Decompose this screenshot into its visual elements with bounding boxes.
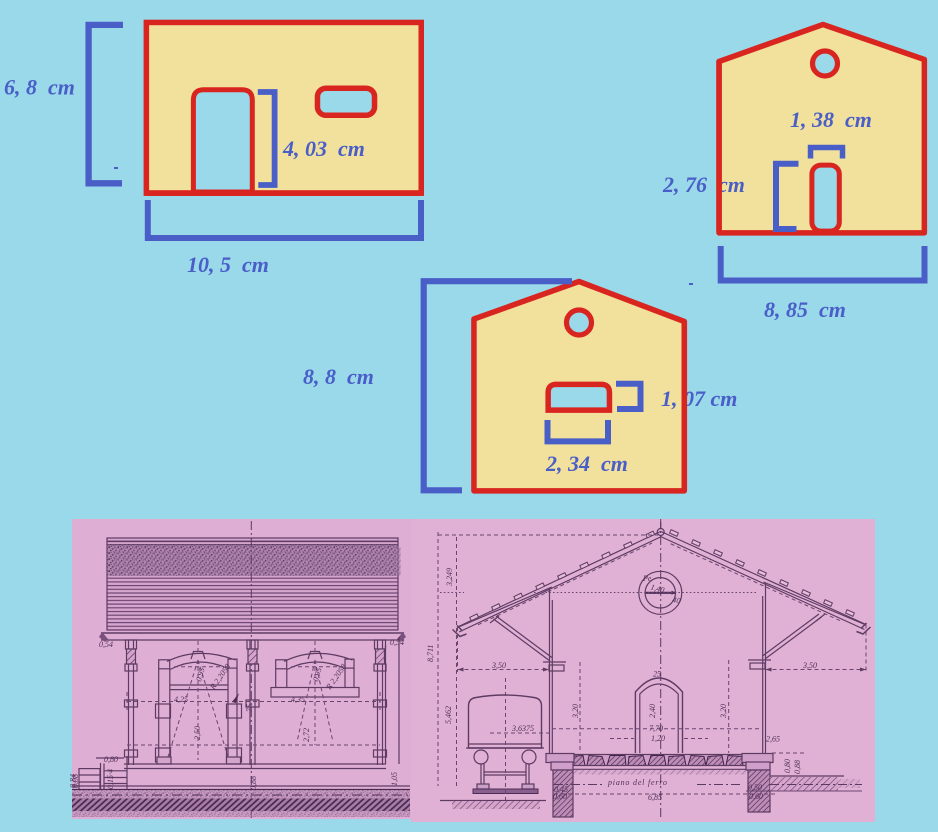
svg-text:3,50: 3,50 bbox=[802, 661, 817, 670]
svg-text:1, 07 cm: 1, 07 cm bbox=[661, 386, 737, 411]
svg-text:1,05: 1,05 bbox=[390, 772, 399, 786]
svg-text:1, 38 cm: 1, 38 cm bbox=[790, 107, 872, 132]
svg-text:2,65: 2,65 bbox=[766, 735, 780, 744]
svg-text:3,20: 3,20 bbox=[719, 704, 728, 719]
svg-text:0,88: 0,88 bbox=[249, 776, 258, 790]
svg-text:3,249: 3,249 bbox=[445, 568, 454, 587]
svg-text:4,25: 4,25 bbox=[174, 695, 188, 704]
svg-text:3,6375: 3,6375 bbox=[511, 724, 534, 733]
svg-text:0,60: 0,60 bbox=[749, 792, 763, 801]
svg-text:4,35: 4,35 bbox=[291, 695, 305, 704]
svg-text:2,40: 2,40 bbox=[648, 704, 657, 718]
svg-text:10, 5 cm: 10, 5 cm bbox=[187, 252, 269, 277]
svg-text:0,08: 0,08 bbox=[71, 774, 80, 788]
svg-text:0,54: 0,54 bbox=[390, 638, 404, 647]
svg-text:8, 85 cm: 8, 85 cm bbox=[764, 297, 846, 322]
svg-text:0,60: 0,60 bbox=[553, 792, 567, 801]
svg-text:1,20: 1,20 bbox=[651, 734, 665, 743]
svg-text:40: 40 bbox=[672, 595, 681, 605]
svg-text:piano del ferro: piano del ferro bbox=[607, 778, 668, 787]
svg-text:4, 03 cm: 4, 03 cm bbox=[282, 136, 365, 161]
svg-text:0,54: 0,54 bbox=[99, 640, 113, 649]
svg-text:Pe: Pe bbox=[642, 574, 652, 583]
svg-text:0,50: 0,50 bbox=[748, 783, 762, 792]
svg-text:75: 75 bbox=[245, 704, 254, 712]
svg-text:2,72: 2,72 bbox=[302, 728, 311, 742]
svg-text:6,85: 6,85 bbox=[648, 793, 662, 802]
svg-text:8,711: 8,711 bbox=[426, 645, 435, 662]
svg-text:0,15·4: 0,15·4 bbox=[106, 769, 115, 789]
svg-text:0,88: 0,88 bbox=[793, 760, 802, 774]
svg-text:3,20: 3,20 bbox=[571, 704, 580, 719]
svg-text:0,80: 0,80 bbox=[104, 755, 118, 764]
svg-text:2, 76 cm: 2, 76 cm bbox=[662, 172, 745, 197]
svg-text:2, 34 cm: 2, 34 cm bbox=[545, 451, 628, 476]
svg-text:3,50: 3,50 bbox=[491, 661, 506, 670]
svg-text:7,70: 7,70 bbox=[649, 724, 663, 733]
svg-text:5,462: 5,462 bbox=[444, 706, 453, 724]
svg-text:6, 8 cm: 6, 8 cm bbox=[4, 75, 75, 100]
svg-text:25: 25 bbox=[653, 670, 661, 679]
svg-text:8, 8 cm: 8, 8 cm bbox=[303, 364, 374, 389]
svg-text:2,50: 2,50 bbox=[193, 726, 202, 740]
svg-text:0,80: 0,80 bbox=[783, 759, 792, 773]
